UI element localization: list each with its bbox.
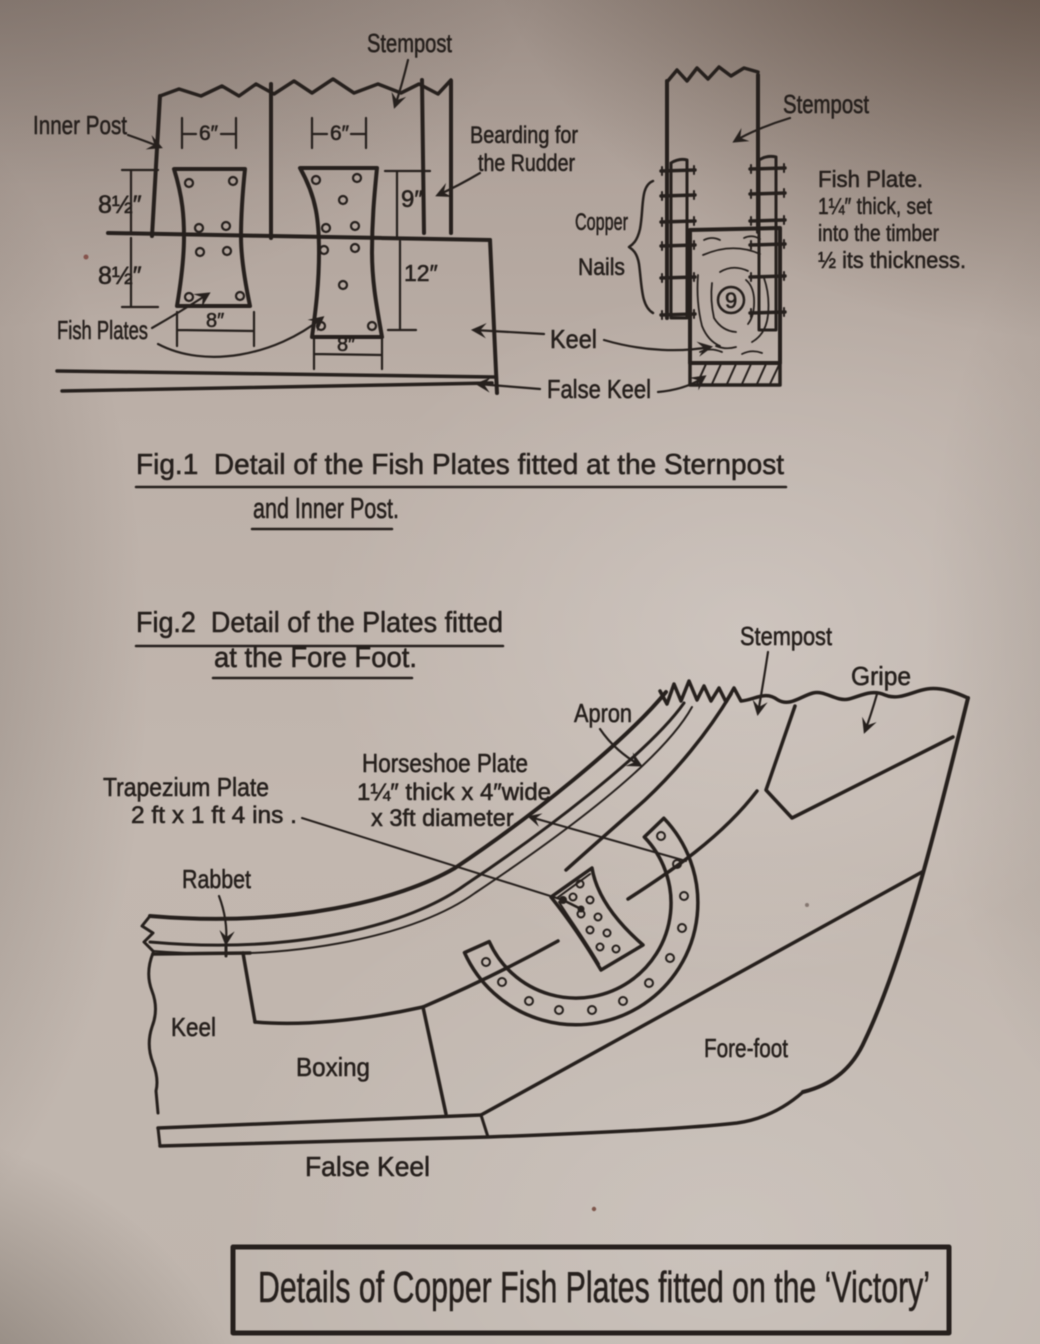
svg-text:Stempost: Stempost	[740, 621, 833, 651]
svg-text:Inner Post: Inner Post	[33, 110, 128, 140]
svg-text:Fore-foot: Fore-foot	[704, 1033, 789, 1063]
svg-text:8″: 8″	[337, 334, 355, 356]
svg-text:False Keel: False Keel	[305, 1151, 430, 1182]
svg-text:Keel: Keel	[550, 324, 597, 354]
svg-text:Gripe: Gripe	[851, 661, 911, 691]
svg-text:8″: 8″	[206, 310, 224, 332]
svg-text:Stempost: Stempost	[783, 89, 870, 119]
svg-text:Boxing: Boxing	[296, 1052, 370, 1082]
svg-text:Trapezium Plate: Trapezium Plate	[103, 772, 269, 802]
svg-text:Fish Plates: Fish Plates	[57, 315, 148, 345]
svg-text:Fig.1 Detail of the Fish Plat: Fig.1 Detail of the Fish Plates fitted a…	[136, 449, 784, 481]
svg-text:1¼″ thick, set: 1¼″ thick, set	[818, 193, 933, 219]
svg-text:Details of Copper Fish Plates: Details of Copper Fish Plates fitted on …	[258, 1263, 930, 1312]
svg-text:6″: 6″	[330, 122, 350, 145]
svg-text:2 ft x 1 ft 4 ins .: 2 ft x 1 ft 4 ins .	[131, 802, 297, 829]
svg-text:Fig.2 Detail of the Plates fi: Fig.2 Detail of the Plates fitted	[136, 607, 503, 639]
svg-text:Keel: Keel	[171, 1012, 216, 1042]
svg-text:½ its thickness.: ½ its thickness.	[818, 247, 966, 273]
svg-text:1¼″ thick x 4″wide: 1¼″ thick x 4″wide	[357, 779, 551, 806]
svg-text:Fish Plate.: Fish Plate.	[818, 166, 923, 192]
svg-text:Nails: Nails	[578, 254, 625, 281]
svg-text:8½″: 8½″	[98, 262, 142, 290]
svg-text:Rabbet: Rabbet	[182, 864, 252, 894]
svg-text:8½″: 8½″	[98, 191, 142, 219]
svg-text:Apron: Apron	[574, 698, 632, 728]
svg-text:False Keel: False Keel	[547, 374, 651, 404]
svg-text:Horseshoe Plate: Horseshoe Plate	[362, 748, 528, 778]
svg-text:at the Fore Foot.: at the Fore Foot.	[214, 642, 417, 674]
svg-text:6″: 6″	[199, 122, 219, 145]
svg-text:the Rudder: the Rudder	[478, 150, 575, 177]
svg-text:x 3ft diameter.: x 3ft diameter.	[371, 805, 519, 832]
svg-text:Copper: Copper	[575, 209, 628, 236]
svg-text:Stempost: Stempost	[367, 28, 453, 58]
svg-text:9″: 9″	[401, 186, 423, 213]
svg-text:and Inner Post.: and Inner Post.	[253, 493, 399, 525]
svg-text:12″: 12″	[404, 260, 438, 286]
svg-text:Bearding for: Bearding for	[470, 122, 578, 149]
svg-text:into the timber: into the timber	[818, 220, 939, 246]
svg-text:9: 9	[725, 288, 737, 313]
